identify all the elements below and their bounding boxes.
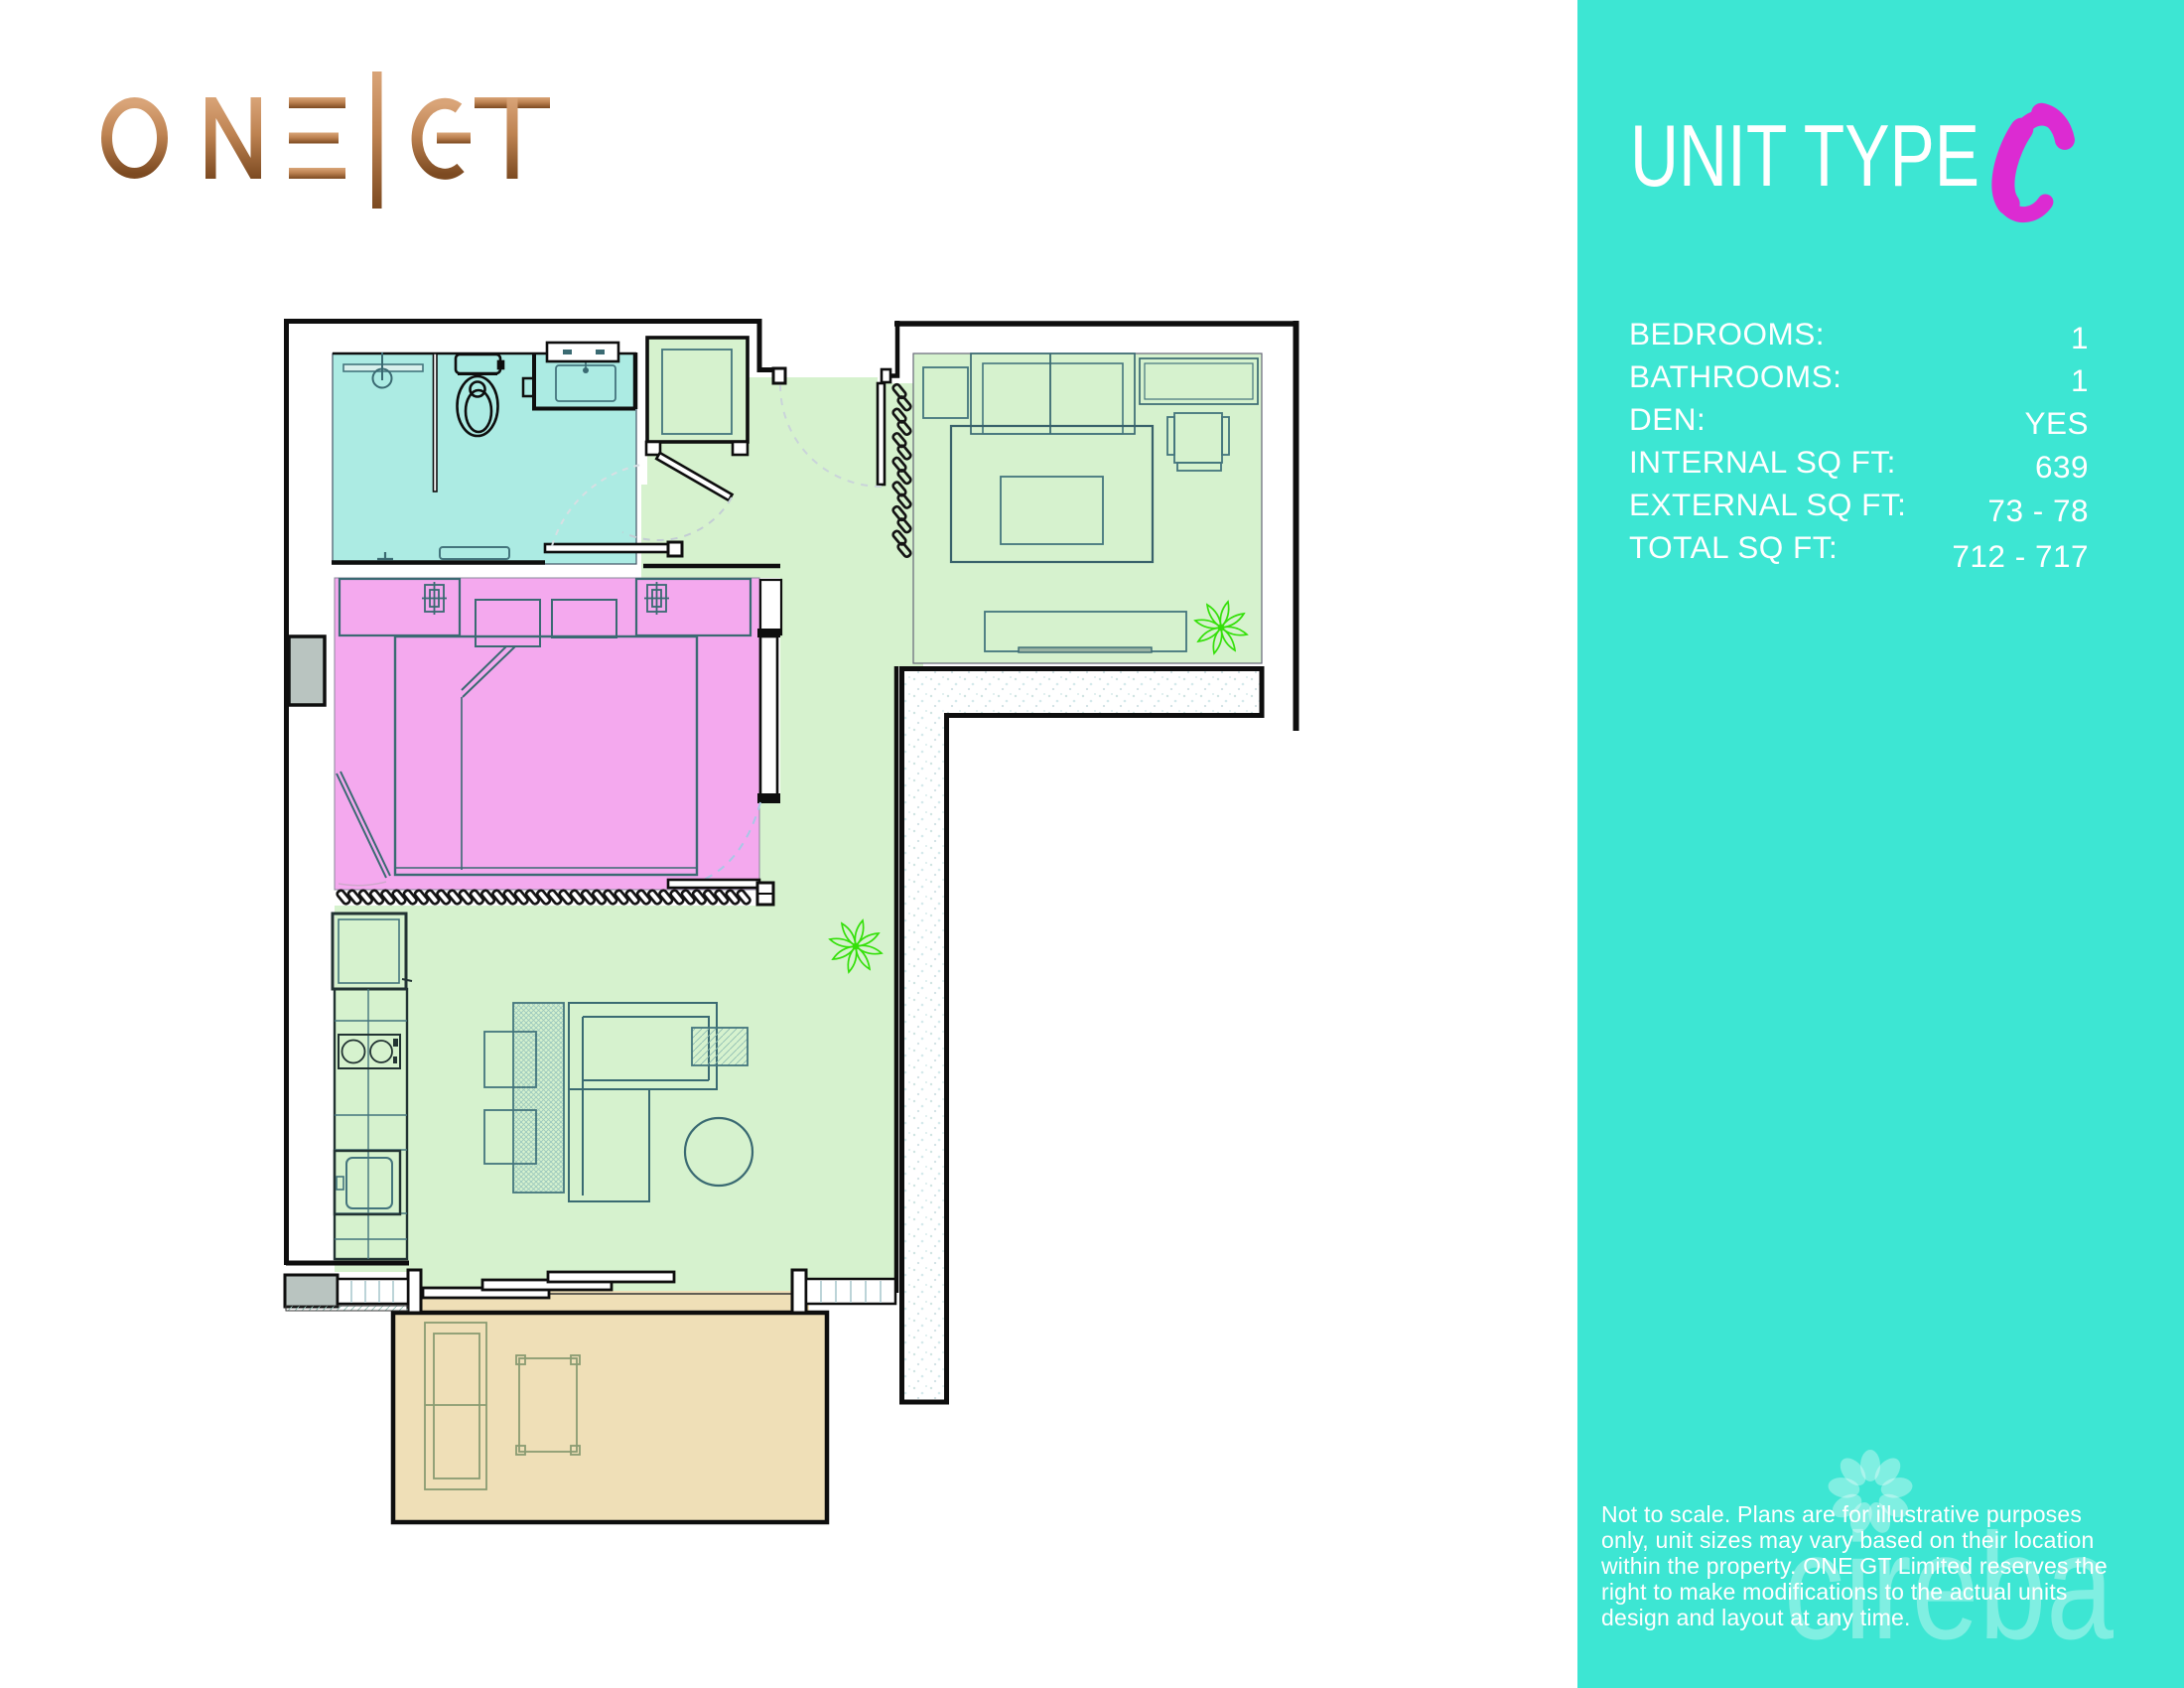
svg-text:Not to scale. Plans are for il: Not to scale. Plans are for illustrative… bbox=[1601, 1501, 2082, 1527]
svg-text:design and layout at any time.: design and layout at any time. bbox=[1601, 1605, 1911, 1630]
svg-text:right to make modifications to: right to make modifications to the actua… bbox=[1601, 1579, 2068, 1605]
svg-text:UNIT TYPE: UNIT TYPE bbox=[1630, 106, 1979, 205]
svg-text:1: 1 bbox=[2071, 362, 2089, 398]
svg-text:EXTERNAL SQ FT:: EXTERNAL SQ FT: bbox=[1629, 487, 1906, 522]
svg-text:only, unit sizes may vary base: only, unit sizes may vary based on their… bbox=[1601, 1527, 2094, 1553]
svg-text:712 - 717: 712 - 717 bbox=[1952, 538, 2089, 574]
svg-text:639: 639 bbox=[2035, 449, 2089, 485]
svg-text:TOTAL SQ FT:: TOTAL SQ FT: bbox=[1629, 529, 1838, 565]
svg-text:INTERNAL SQ FT:: INTERNAL SQ FT: bbox=[1629, 444, 1896, 480]
svg-text:YES: YES bbox=[2024, 405, 2089, 441]
svg-text:BATHROOMS:: BATHROOMS: bbox=[1629, 358, 1842, 394]
svg-text:BEDROOMS:: BEDROOMS: bbox=[1629, 316, 1825, 352]
svg-text:73 - 78: 73 - 78 bbox=[1987, 492, 2089, 528]
svg-text:1: 1 bbox=[2071, 320, 2089, 355]
svg-text:DEN:: DEN: bbox=[1629, 401, 1706, 437]
svg-text:within the property. ONE GT Li: within the property. ONE GT Limited rese… bbox=[1600, 1553, 2108, 1579]
